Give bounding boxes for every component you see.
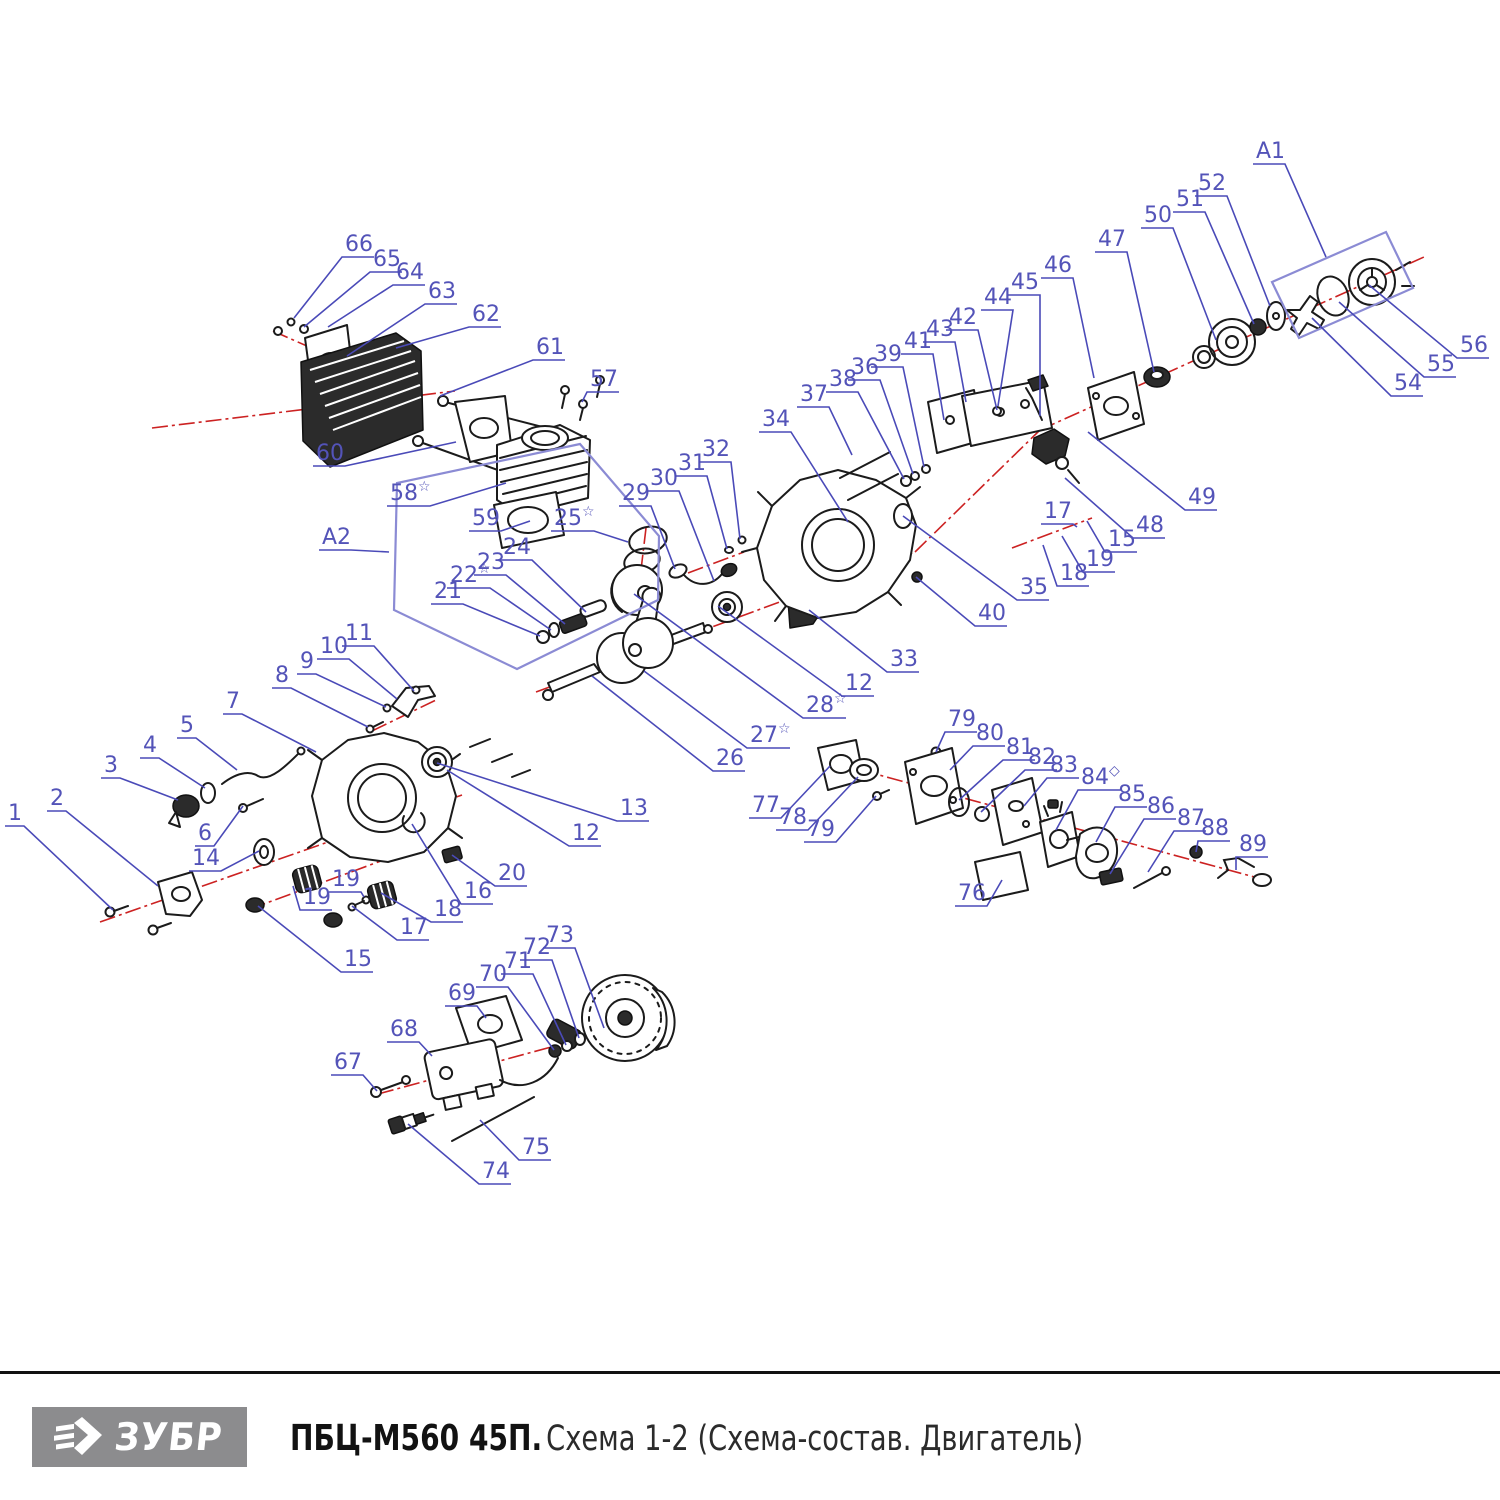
callout-number: 62 [472, 302, 500, 327]
callout-67: 67 [331, 1050, 377, 1091]
callout-number: A2 [322, 525, 351, 550]
callout-27: 27☆ [644, 671, 791, 748]
av-buffer-part [366, 880, 397, 910]
callout-number: 73 [546, 923, 574, 948]
callout-number: 9 [300, 649, 314, 674]
brand-logo: ЗУБР [32, 1407, 247, 1467]
callout-number: 19 [1086, 547, 1114, 572]
callout-number: 63 [428, 279, 456, 304]
callout-58: 58☆ [387, 479, 506, 506]
spark-plug-part [388, 1106, 435, 1134]
callout-number: 46 [1044, 253, 1072, 278]
callout-40: 40 [916, 577, 1007, 626]
callout-17: 17 [1041, 499, 1077, 527]
callout-number: 88 [1201, 816, 1229, 841]
callout-79: 79 [804, 796, 876, 842]
callout-3: 3 [101, 753, 178, 800]
callout-number: 85 [1118, 782, 1146, 807]
callout-number: 19 [332, 867, 360, 892]
callout-a1: A1 [1253, 139, 1326, 257]
brand-arrow-icon [52, 1415, 104, 1459]
callout-52: 52 [1195, 171, 1270, 306]
callout-50: 50 [1141, 203, 1216, 340]
callout-11: 11 [342, 621, 414, 691]
callout-15: 15 [258, 906, 373, 972]
clutch-spring-part [1312, 272, 1354, 320]
callout-number: 77 [752, 793, 780, 818]
callout-number: 16 [464, 879, 492, 904]
callout-number: 86 [1147, 794, 1175, 819]
callout-number: 18 [434, 897, 462, 922]
callout-layer: 1234567891011121314151617181919202122☆23… [5, 139, 1489, 1184]
callout-49: 49 [1088, 432, 1217, 510]
callout-17: 17 [352, 906, 429, 940]
callout-54: 54 [1312, 318, 1423, 396]
oil-pump-and-clutch [1026, 259, 1414, 483]
o-ring-part [975, 807, 989, 821]
callout-18: 18 [1043, 545, 1089, 586]
callout-46: 46 [1041, 253, 1094, 378]
crank-nut [704, 625, 712, 633]
callout-number: 27☆ [750, 721, 791, 748]
callout-number: 61 [536, 335, 564, 360]
callout-62: 62 [396, 302, 501, 348]
callout-number: 5 [180, 713, 194, 738]
callout-33: 33 [809, 610, 919, 672]
brand-name: ЗУБР [112, 1415, 224, 1459]
screw-part [149, 926, 158, 935]
callout-8: 8 [272, 663, 368, 727]
footer-divider [0, 1371, 1500, 1374]
callout-24: 24 [500, 535, 586, 612]
callout-number: 44 [984, 285, 1012, 310]
callout-79: 79 [936, 707, 977, 752]
callout-number: 17 [1044, 499, 1072, 524]
callout-88: 88 [1196, 816, 1230, 852]
callout-number: 24 [503, 535, 531, 560]
washer-part [562, 1041, 572, 1051]
callout-number: 15 [344, 947, 372, 972]
callout-number: 66 [345, 232, 373, 257]
callout-number: 60 [316, 441, 344, 466]
crank-nut [543, 690, 553, 700]
callout-number: 11 [345, 621, 373, 646]
callout-number: 79 [948, 707, 976, 732]
callout-number: 47 [1098, 227, 1126, 252]
callout-57: 57 [582, 367, 619, 402]
ht-wire-part [500, 1058, 558, 1085]
screw-part [106, 908, 115, 917]
callout-number: 2 [50, 786, 64, 811]
callout-39: 39 [871, 342, 924, 467]
callout-number: 3 [104, 753, 118, 778]
callout-number: 35 [1020, 575, 1048, 600]
callout-number: 65 [373, 247, 401, 272]
callout-35: 35 [903, 516, 1049, 600]
callout-number: 14 [192, 846, 220, 871]
callout-51: 51 [1173, 187, 1254, 324]
callout-number: 26 [716, 746, 744, 771]
callout-number: 30 [650, 466, 678, 491]
callout-number: 40 [978, 601, 1006, 626]
rod-part [1134, 873, 1162, 888]
scheme-name: Схема 1-2 (Схема-состав. Двигатель) [546, 1419, 1083, 1459]
callout-68: 68 [387, 1017, 432, 1056]
callout-a2: A2 [319, 525, 389, 552]
cylinder-assembly [494, 376, 604, 548]
callout-number: 84◇ [1081, 763, 1120, 790]
hose-nipple-part [719, 561, 739, 579]
callout-number: 43 [926, 317, 954, 342]
callout-number: 34 [762, 407, 790, 432]
callout-number: 50 [1144, 203, 1172, 228]
callout-number: 80 [976, 721, 1004, 746]
callout-number: 52 [1198, 171, 1226, 196]
crank-web [623, 618, 673, 668]
pin-part [363, 897, 370, 904]
crank-shaft-left [548, 664, 600, 692]
callout-7: 7 [223, 689, 316, 752]
callout-number: 45 [1011, 270, 1039, 295]
callout-number: 56 [1460, 333, 1488, 358]
crankcase-flywheel-side [308, 733, 530, 863]
callout-number: A1 [1256, 139, 1285, 164]
callout-number: 37 [800, 382, 828, 407]
assembly-axis-lines [100, 257, 1424, 1094]
callout-1: 1 [5, 801, 113, 910]
callout-number: 6 [198, 821, 212, 846]
callout-number: 4 [143, 733, 157, 758]
callout-number: 29 [622, 481, 650, 506]
callout-number: 19 [303, 885, 331, 910]
hose-part [684, 574, 722, 584]
callout-37: 37 [797, 382, 852, 455]
document-title: ПБЦ-М560 45П. Схема 1-2 (Схема-состав. Д… [290, 1418, 1083, 1459]
callout-number: 12 [572, 821, 600, 846]
callout-number: 13 [620, 796, 648, 821]
ignition-group [371, 975, 675, 1141]
callout-number: 67 [334, 1050, 362, 1075]
callout-number: 79 [807, 817, 835, 842]
callout-number: 76 [958, 881, 986, 906]
callout-number: 39 [874, 342, 902, 367]
case-screws [470, 739, 530, 777]
callout-2: 2 [47, 786, 158, 886]
callout-number: 58☆ [390, 479, 431, 506]
callout-number: 48 [1136, 513, 1164, 538]
callout-number: 32 [702, 437, 730, 462]
callout-number: 18 [1060, 561, 1088, 586]
screw-part [274, 327, 282, 335]
callout-number: 20 [498, 861, 526, 886]
callout-14: 14 [189, 846, 259, 871]
callout-number: 55 [1427, 352, 1455, 377]
cylinder-screw [561, 386, 569, 394]
group-box-A1 [1272, 232, 1413, 338]
callout-4: 4 [140, 733, 205, 788]
callout-number: 75 [522, 1135, 550, 1160]
callout-number: 8 [275, 663, 289, 688]
callout-13: 13 [437, 763, 649, 821]
callout-61: 61 [440, 335, 565, 396]
callout-5: 5 [177, 713, 237, 770]
plug-cap-part [246, 898, 264, 912]
callout-38: 38 [826, 367, 904, 479]
callout-number: 1 [8, 801, 22, 826]
callout-number: 78 [779, 805, 807, 830]
callout-number: 74 [482, 1159, 510, 1184]
callout-72: 72 [520, 935, 579, 1038]
callout-6: 6 [195, 806, 243, 846]
callout-number: 68 [390, 1017, 418, 1042]
washer-part [288, 319, 295, 326]
callout-number: 69 [448, 981, 476, 1006]
callout-89: 89 [1236, 832, 1268, 870]
callout-47: 47 [1095, 227, 1154, 372]
model-name: ПБЦ-М560 45П. [290, 1418, 542, 1459]
plug-cap-part [324, 913, 342, 927]
callout-23: 23 [474, 550, 565, 624]
carb-lever-part [1048, 800, 1058, 808]
callout-19: 19 [329, 867, 364, 897]
callout-56: 56 [1369, 285, 1489, 358]
callout-number: 89 [1239, 832, 1267, 857]
parts-diagram-page: 1234567891011121314151617181919202122☆23… [0, 0, 1500, 1500]
washer-part [402, 1076, 410, 1084]
callout-number: 54 [1394, 371, 1422, 396]
callout-number: 33 [890, 647, 918, 672]
callout-number: 38 [829, 367, 857, 392]
callout-number: 25☆ [554, 504, 595, 531]
washer-part [575, 1033, 585, 1045]
exploded-view-diagram: 1234567891011121314151617181919202122☆23… [0, 0, 1500, 1500]
screw-part [371, 1087, 381, 1097]
callout-number: 7 [226, 689, 240, 714]
callout-number: 57 [590, 367, 618, 392]
callout-number: 12 [845, 671, 873, 696]
callout-number: 83 [1050, 753, 1078, 778]
callout-74: 74 [408, 1124, 511, 1184]
choke-knob-part [1253, 874, 1271, 886]
lever-link-group [367, 686, 436, 733]
callout-number: 59 [472, 506, 500, 531]
callout-number: 23 [477, 550, 505, 575]
callout-75: 75 [480, 1120, 551, 1160]
callout-number: 17 [400, 915, 428, 940]
washer-part [537, 631, 549, 643]
callout-number: 49 [1188, 485, 1216, 510]
